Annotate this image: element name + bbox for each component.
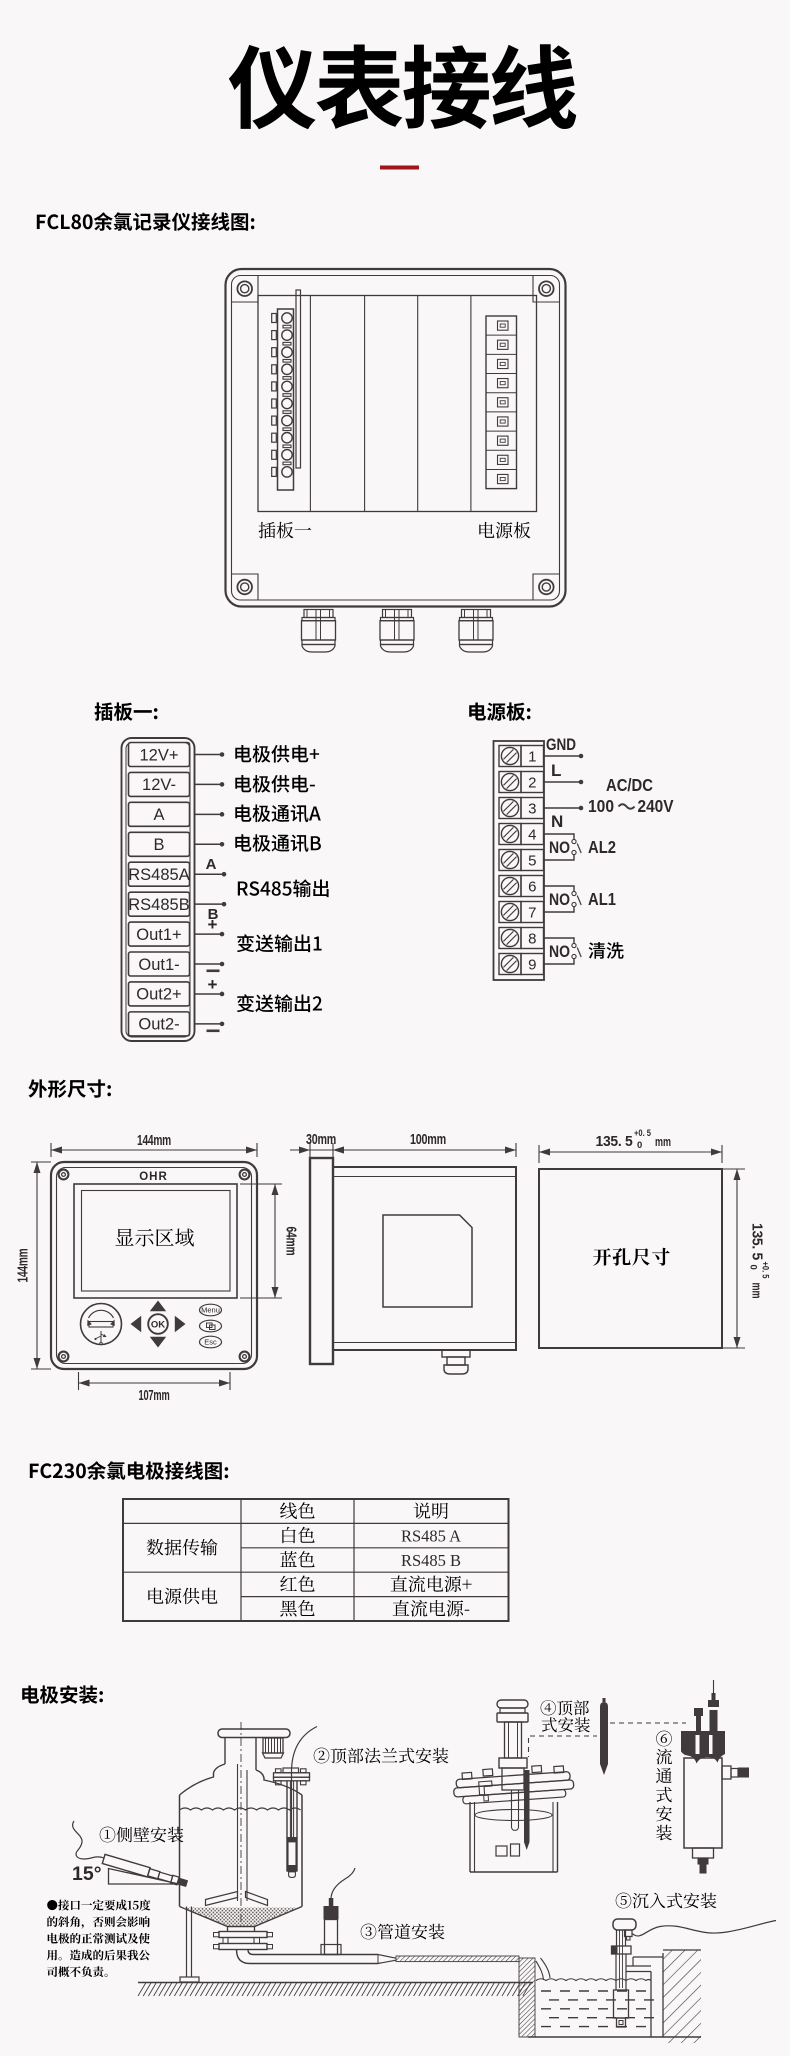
svg-text:L: L — [551, 761, 561, 780]
svg-text:7: 7 — [528, 904, 536, 921]
svg-text:8: 8 — [528, 930, 536, 947]
svg-text:64mm: 64mm — [283, 1227, 299, 1256]
svg-text:AL1: AL1 — [588, 889, 616, 909]
svg-text:NO: NO — [549, 839, 570, 857]
svg-text:mm: mm — [750, 1283, 765, 1299]
svg-text:5: 5 — [528, 852, 536, 869]
svg-text:144mm: 144mm — [16, 1249, 32, 1283]
svg-text:A: A — [206, 856, 217, 873]
svg-text:107mm: 107mm — [139, 1388, 170, 1404]
svg-text:RS485 B: RS485 B — [401, 1551, 461, 1570]
svg-text:NO: NO — [549, 891, 570, 909]
svg-text:12V+: 12V+ — [140, 746, 179, 764]
svg-text:9: 9 — [528, 956, 536, 973]
svg-text:1: 1 — [528, 748, 536, 765]
svg-text:mm: mm — [655, 1134, 671, 1149]
svg-text:100mm: 100mm — [410, 1132, 446, 1148]
svg-text:12V-: 12V- — [142, 776, 176, 794]
svg-text:OHR: OHR — [139, 1171, 168, 1183]
svg-text:144mm: 144mm — [137, 1133, 171, 1149]
svg-text:A: A — [153, 806, 164, 824]
svg-text:N: N — [551, 812, 563, 831]
svg-text:Out1-: Out1- — [138, 956, 179, 974]
svg-text:RS485B: RS485B — [128, 896, 189, 914]
svg-text:RS485A: RS485A — [128, 866, 189, 884]
svg-text:Menu: Menu — [201, 1306, 220, 1315]
svg-text:+0. 5: +0. 5 — [760, 1262, 771, 1280]
svg-text:0: 0 — [748, 1265, 759, 1270]
svg-text:+0. 5: +0. 5 — [634, 1128, 652, 1139]
svg-text:Out2-: Out2- — [138, 1016, 179, 1034]
svg-text:AL2: AL2 — [588, 837, 616, 857]
svg-text:15°: 15° — [72, 1863, 102, 1885]
svg-text:OK: OK — [151, 1320, 165, 1331]
svg-text:+: + — [208, 975, 218, 994]
svg-text:Out2+: Out2+ — [136, 986, 181, 1004]
svg-text:135. 5: 135. 5 — [596, 1133, 633, 1150]
svg-text:NO: NO — [549, 943, 570, 961]
svg-text:+: + — [208, 915, 218, 934]
svg-text:30mm: 30mm — [306, 1132, 336, 1148]
svg-text:6: 6 — [528, 878, 536, 895]
svg-text:2: 2 — [528, 774, 536, 791]
svg-text:Out1+: Out1+ — [136, 926, 181, 944]
svg-text:240V: 240V — [638, 796, 674, 816]
svg-text:B: B — [153, 836, 164, 854]
svg-text:GND: GND — [546, 735, 576, 754]
svg-text:Esc: Esc — [204, 1338, 217, 1347]
svg-text:AC/DC: AC/DC — [606, 775, 653, 795]
svg-text:RS485 A: RS485 A — [401, 1526, 461, 1545]
svg-text:4: 4 — [528, 826, 536, 843]
svg-text:3: 3 — [528, 800, 536, 817]
svg-text:0: 0 — [637, 1140, 642, 1151]
svg-text:100: 100 — [588, 796, 614, 816]
svg-text:135. 5: 135. 5 — [749, 1223, 766, 1260]
